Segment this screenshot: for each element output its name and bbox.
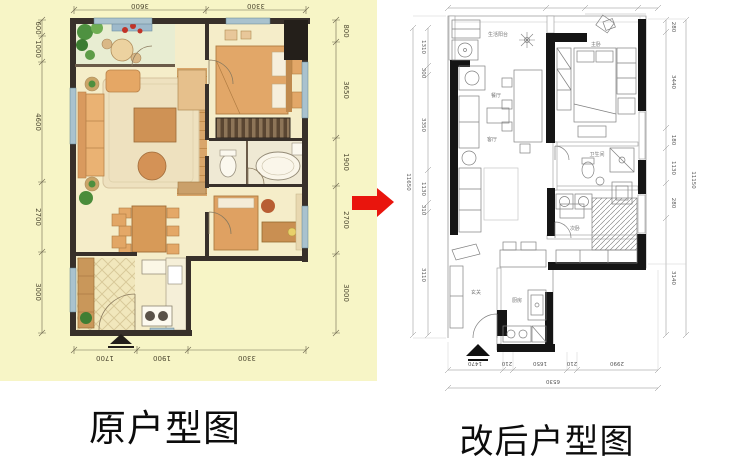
svg-text:180: 180 (670, 135, 676, 146)
svg-text:玄关: 玄关 (471, 289, 481, 296)
structural-walls (450, 19, 646, 352)
svg-text:300: 300 (420, 68, 426, 79)
svg-text:3650: 3650 (342, 81, 350, 99)
svg-text:11150: 11150 (690, 171, 696, 189)
svg-text:主卧: 主卧 (591, 41, 601, 48)
modified-floor-plan: 生活阳台 餐厅 客厅 主卧 卫生间 玄关 厨房 次卧 1310 300 (377, 0, 750, 410)
svg-text:1130: 1130 (670, 161, 676, 175)
svg-text:2990: 2990 (610, 360, 624, 366)
svg-text:4600: 4600 (34, 113, 42, 131)
svg-text:280: 280 (670, 198, 676, 209)
svg-text:餐厅: 餐厅 (491, 92, 501, 99)
svg-text:11650: 11650 (405, 173, 411, 191)
svg-text:210: 210 (566, 360, 577, 366)
svg-text:1130: 1130 (420, 182, 426, 196)
svg-text:1700: 1700 (96, 354, 114, 362)
svg-text:1650: 1650 (533, 360, 547, 366)
svg-text:3350: 3350 (420, 118, 426, 132)
svg-text:2700: 2700 (34, 208, 42, 226)
svg-text:次卧: 次卧 (570, 225, 580, 232)
svg-text:310: 310 (420, 205, 426, 216)
svg-text:3600: 3600 (131, 2, 149, 10)
svg-text:3140: 3140 (670, 271, 676, 285)
svg-text:6530: 6530 (546, 378, 560, 384)
svg-text:生活阳台: 生活阳台 (488, 31, 508, 38)
original-floor-plan: 3600 3300 1700 1900 3300 600 1000 4600 2… (0, 0, 377, 381)
svg-text:3000: 3000 (34, 283, 42, 301)
svg-text:卫生间: 卫生间 (589, 151, 604, 158)
entry-arrow (466, 344, 490, 360)
original-plan-label: 原户型图 (35, 398, 295, 452)
svg-text:1310: 1310 (420, 40, 426, 54)
svg-text:1470: 1470 (468, 360, 482, 366)
svg-text:280: 280 (670, 22, 676, 33)
svg-text:客厅: 客厅 (487, 136, 497, 143)
svg-text:3110: 3110 (420, 268, 426, 282)
modified-plan-label: 改后户型图 (412, 414, 682, 463)
entry-arrow (108, 334, 134, 348)
svg-text:3000: 3000 (342, 284, 350, 302)
svg-text:1000: 1000 (34, 40, 42, 58)
svg-text:1900: 1900 (342, 153, 350, 171)
dining-furniture (112, 206, 179, 254)
svg-text:厨房: 厨房 (512, 297, 522, 304)
svg-text:800: 800 (342, 24, 350, 37)
svg-text:1900: 1900 (153, 354, 171, 362)
svg-text:600: 600 (34, 21, 42, 34)
screenshot-stage: 3600 3300 1700 1900 3300 600 1000 4600 2… (0, 0, 750, 469)
svg-text:3300: 3300 (247, 2, 265, 10)
svg-text:210: 210 (501, 360, 512, 366)
svg-text:3440: 3440 (670, 75, 676, 89)
svg-text:3300: 3300 (238, 354, 256, 362)
